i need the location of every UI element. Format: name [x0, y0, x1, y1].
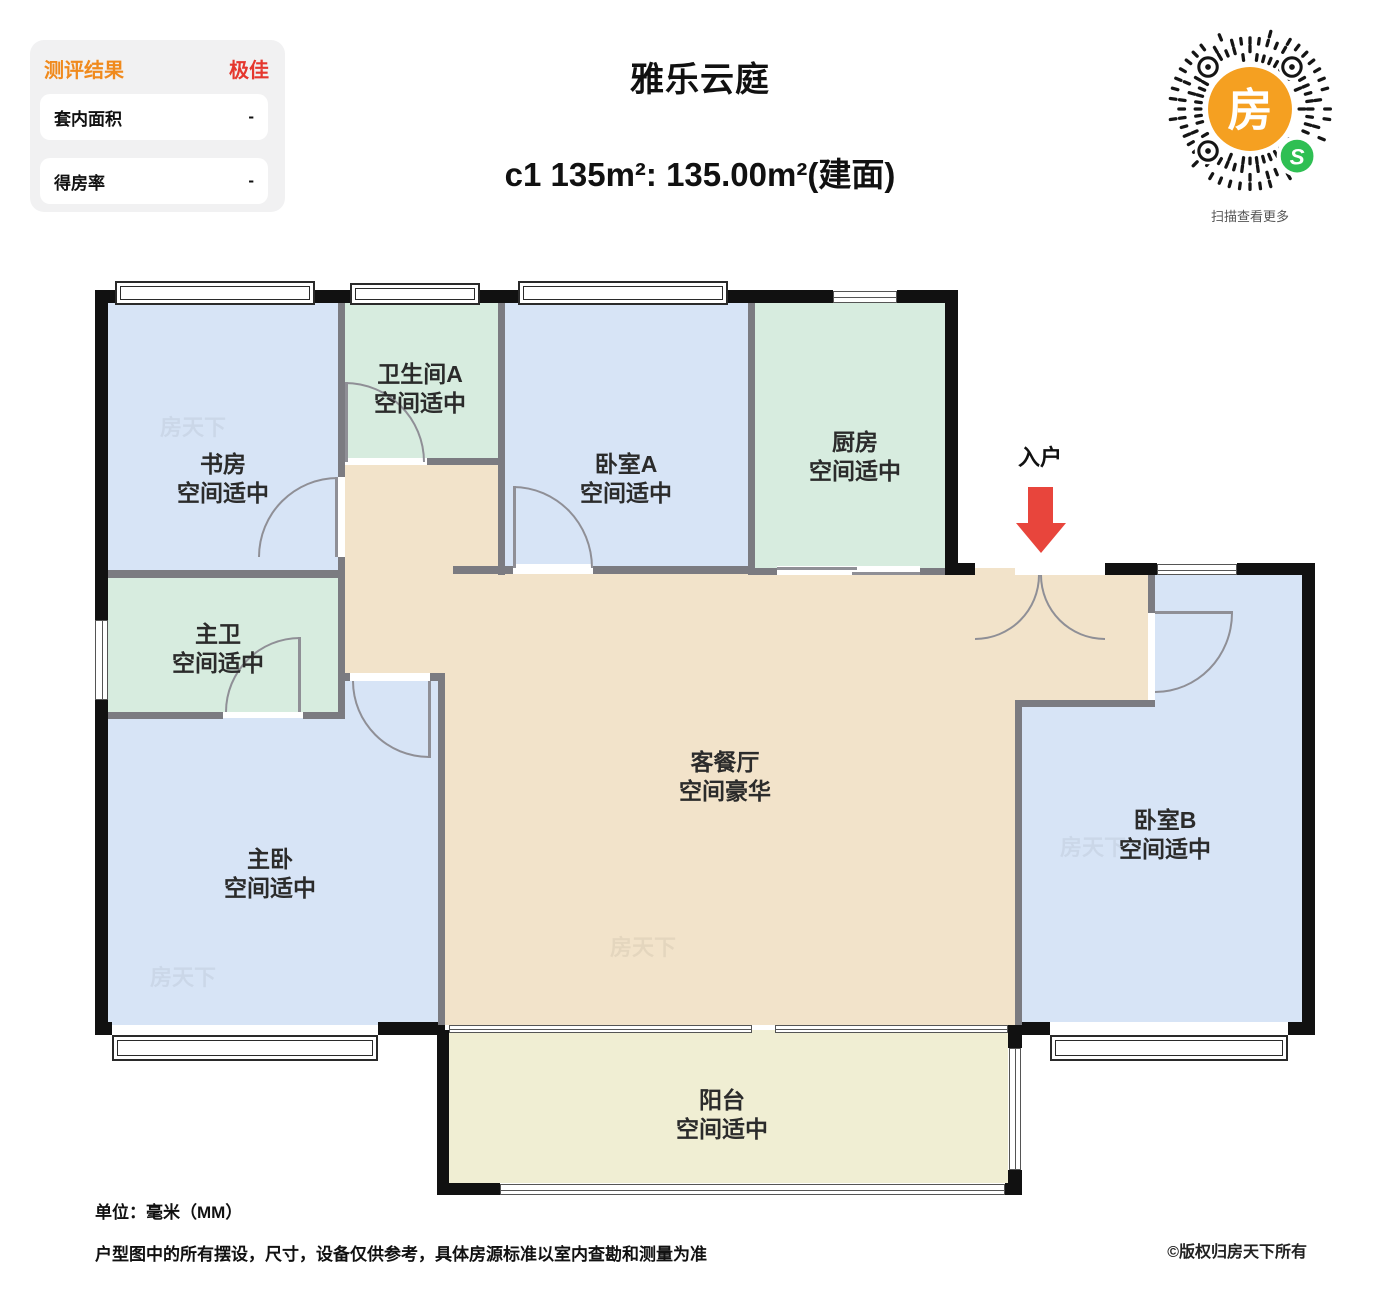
- copyright-note: ©版权归房天下所有: [1000, 1238, 1307, 1262]
- room-label-master-bed: 主卧 空间适中: [170, 845, 370, 904]
- balcony-slider-window: [775, 1025, 1008, 1033]
- wall: [1008, 1025, 1022, 1048]
- partition-wall: [920, 568, 945, 575]
- window: [500, 1184, 1005, 1195]
- wall: [378, 1022, 445, 1035]
- qr-sun-code-icon: 房 S: [1163, 22, 1337, 196]
- bay-window: [350, 283, 480, 305]
- wall: [1105, 563, 1157, 575]
- evaluation-row-label: 套内面积: [54, 105, 122, 130]
- room-label-study: 书房 空间适中: [123, 450, 323, 509]
- window: [833, 291, 897, 303]
- partition-wall: [108, 570, 338, 578]
- watermark: 房天下: [150, 960, 216, 992]
- wall: [480, 290, 520, 303]
- room-label-balcony: 阳台 空间适中: [622, 1086, 822, 1145]
- bay-window: [112, 1035, 378, 1061]
- wall: [945, 563, 975, 575]
- bay-window: [1050, 1035, 1288, 1061]
- entrance-label: 入户: [1002, 440, 1078, 472]
- evaluation-row-value: -: [248, 107, 254, 127]
- balcony-slider-window: [449, 1025, 752, 1033]
- qr-caption: 扫描查看更多: [1163, 206, 1337, 225]
- hall-nook-fill: [345, 572, 452, 673]
- miniprogram-badge-glyph: S: [1290, 144, 1305, 169]
- corridor-fill: [345, 465, 498, 572]
- wall: [1302, 563, 1315, 1035]
- bay-window: [115, 281, 315, 305]
- sliding-door-track: [852, 572, 920, 575]
- room-label-living: 客餐厅 空间豪华: [625, 748, 825, 807]
- partition-wall: [438, 681, 445, 1025]
- partition-wall: [430, 673, 445, 681]
- room-label-bed-b: 卧室B 空间适中: [1065, 806, 1265, 865]
- partition-wall: [303, 712, 345, 719]
- wall: [728, 290, 833, 303]
- wall: [1288, 1022, 1315, 1035]
- partition-wall: [498, 303, 505, 575]
- partition-wall: [338, 570, 345, 718]
- partition-wall: [593, 566, 748, 574]
- partition-wall: [748, 303, 755, 575]
- wall: [437, 1030, 449, 1195]
- wall: [315, 290, 350, 303]
- floorplan-page: 测评结果 极佳 套内面积 - 得房率 - 雅乐云庭 c1 135m²: 135.…: [0, 0, 1400, 1289]
- wall: [1008, 1170, 1022, 1195]
- qr-center-glyph: 房: [1227, 84, 1272, 135]
- qr-code: 房 S: [1163, 22, 1337, 196]
- room-label-master-bath: 主卫 空间适中: [118, 620, 318, 679]
- partition-wall: [1015, 700, 1155, 707]
- wall: [95, 700, 108, 1035]
- watermark: 房天下: [610, 930, 676, 962]
- partition-wall: [453, 566, 513, 574]
- partition-wall: [1015, 707, 1022, 1025]
- watermark: 房天下: [160, 410, 226, 442]
- window: [1009, 1048, 1021, 1170]
- partition-wall: [427, 458, 498, 465]
- partition-wall: [1148, 575, 1155, 613]
- room-label-kitchen: 厨房 空间适中: [755, 428, 955, 487]
- room-label-bed-a: 卧室A 空间适中: [526, 450, 726, 509]
- unit-note: 单位：毫米（MM）: [95, 1198, 242, 1223]
- entrance-arrow-icon: [1028, 487, 1053, 524]
- partition-wall: [338, 557, 345, 570]
- entrance-arrow-icon: [1016, 523, 1066, 553]
- room-label-bath-a: 卫生间A 空间适中: [320, 360, 520, 419]
- sliding-door-track: [777, 567, 857, 570]
- wall: [95, 290, 108, 620]
- window: [1157, 564, 1237, 575]
- partition-wall: [338, 673, 350, 681]
- bay-window: [518, 281, 728, 305]
- window: [95, 620, 108, 700]
- partition-wall: [108, 712, 223, 719]
- disclaimer-note: 户型图中的所有摆设，尺寸，设备仅供参考，具体房源标准以室内查勘和测量为准: [95, 1240, 707, 1265]
- wall: [437, 1183, 500, 1195]
- wall: [95, 1022, 112, 1035]
- partition-wall: [755, 568, 777, 575]
